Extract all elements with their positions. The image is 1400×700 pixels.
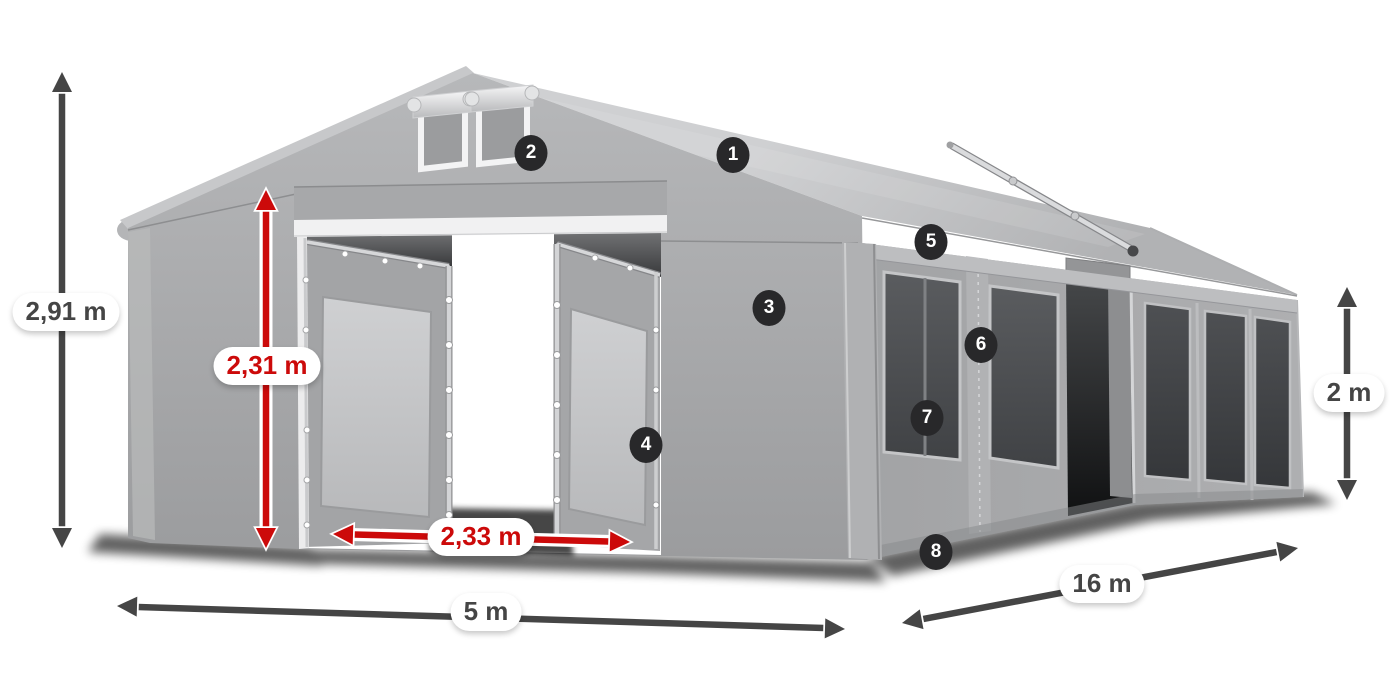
side-window-2 xyxy=(990,286,1058,468)
feature-badge-8: 8 xyxy=(920,534,953,570)
feature-badge-5: 5 xyxy=(915,224,948,260)
tent-illustration xyxy=(0,0,1400,700)
dimension-label-side-height: 2 m xyxy=(1314,374,1385,412)
feature-badge-7: 7 xyxy=(911,400,944,436)
feature-badge-4: 4 xyxy=(630,427,663,463)
door-leaf-right xyxy=(554,243,661,551)
front-entrance xyxy=(294,181,667,556)
side-window-4 xyxy=(1205,311,1246,484)
door-leaf-left xyxy=(303,241,453,547)
side-doorway-open xyxy=(1066,258,1134,516)
tent-dimensions-diagram: 1 2 3 4 5 6 7 8 2,91 m 2,31 m 2,33 m 5 m… xyxy=(0,0,1400,700)
feature-badge-6: 6 xyxy=(965,327,998,363)
door-window-left xyxy=(321,297,431,517)
feature-badge-2: 2 xyxy=(515,135,548,171)
side-window-5 xyxy=(1255,317,1290,488)
feature-badge-1: 1 xyxy=(717,137,750,173)
feature-badge-3: 3 xyxy=(753,290,786,326)
dimension-label-front-width: 5 m xyxy=(451,593,522,631)
dimension-label-total-height: 2,91 m xyxy=(13,293,120,331)
side-window-3 xyxy=(1145,303,1190,480)
dimension-label-entrance-width: 2,33 m xyxy=(428,518,535,556)
dimension-label-side-length: 16 m xyxy=(1059,565,1144,603)
door-window-right xyxy=(569,309,647,525)
dimension-label-entrance-height: 2,31 m xyxy=(214,347,321,385)
